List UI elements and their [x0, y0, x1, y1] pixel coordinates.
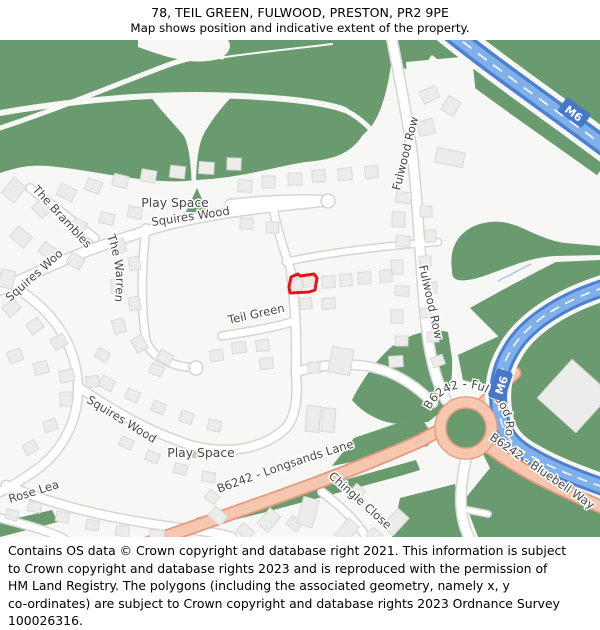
page-subtitle: Map shows position and indicative extent… — [0, 21, 600, 36]
building — [140, 169, 157, 183]
page-title: 78, TEIL GREEN, FULWOOD, PRESTON, PR2 9P… — [0, 4, 600, 21]
building — [227, 158, 241, 170]
building — [27, 501, 42, 513]
building — [425, 230, 436, 242]
building — [128, 256, 141, 271]
building — [391, 310, 403, 323]
map-image: Play Space Play Space Squires Wood Squir… — [0, 40, 600, 537]
building — [5, 509, 19, 522]
building — [328, 346, 354, 375]
building — [396, 236, 411, 248]
map-container: Play Space Play Space Squires Wood Squir… — [0, 40, 600, 537]
building — [395, 191, 411, 204]
building — [291, 279, 303, 291]
building — [392, 212, 406, 227]
building — [395, 336, 408, 346]
building — [255, 339, 269, 351]
label-play-space-2: Play Space — [167, 445, 235, 460]
building — [266, 222, 279, 233]
building — [305, 406, 321, 433]
copyright-footer: Contains OS data © Crown copyright and d… — [0, 537, 600, 630]
building — [262, 176, 275, 188]
building — [322, 298, 336, 310]
footer-line: to Crown copyright and database rights 2… — [8, 560, 592, 578]
building — [420, 206, 432, 217]
footer-line: co-ordinates) are subject to Crown copyr… — [8, 595, 592, 613]
building — [358, 272, 372, 285]
building — [365, 166, 379, 179]
building — [395, 286, 409, 296]
building — [340, 274, 353, 287]
building — [201, 471, 215, 483]
building — [60, 392, 72, 406]
building — [288, 173, 302, 185]
building — [338, 168, 353, 181]
building — [116, 525, 130, 536]
building — [86, 375, 100, 387]
building — [312, 170, 326, 183]
report-header: 78, TEIL GREEN, FULWOOD, PRESTON, PR2 9P… — [0, 0, 600, 40]
building — [321, 408, 336, 433]
building — [209, 349, 223, 362]
building — [55, 511, 70, 523]
building — [240, 218, 253, 229]
building — [380, 270, 393, 283]
building — [207, 419, 222, 432]
building — [231, 341, 246, 353]
building — [300, 298, 313, 310]
label-play-space-1: Play Space — [141, 195, 209, 210]
building — [59, 369, 75, 383]
footer-line: Contains OS data © Crown copyright and d… — [8, 542, 592, 560]
building — [391, 260, 403, 274]
building — [128, 296, 141, 311]
roundabout — [435, 397, 497, 459]
footer-line: 100026316. — [8, 612, 592, 630]
building — [150, 530, 165, 537]
building — [303, 277, 315, 288]
building — [389, 356, 404, 368]
building — [308, 362, 320, 373]
building — [85, 519, 99, 531]
building — [322, 276, 336, 289]
building — [238, 180, 253, 193]
footer-line: HM Land Registry. The polygons (includin… — [8, 577, 592, 595]
building — [260, 357, 274, 369]
building — [169, 165, 185, 179]
building — [199, 161, 215, 174]
